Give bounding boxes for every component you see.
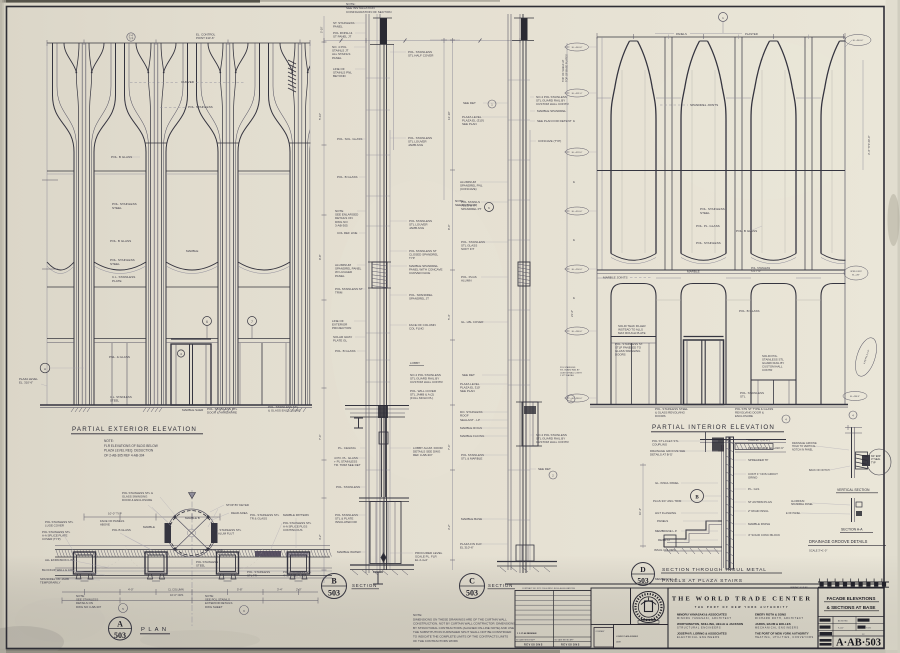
svg-text:GRAPHIC SCALES: GRAPHIC SCALES (790, 586, 808, 589)
svg-text:SEE DET: SEE DET (462, 373, 475, 377)
svg-text:MARBLE: MARBLE (687, 270, 700, 274)
svg-text:7'-6": 7'-6" (318, 434, 322, 440)
svg-text:SPANDREL PANEL: SPANDREL PANEL (791, 503, 814, 506)
svg-text:EL.+280'-0": EL.+280'-0" (572, 398, 583, 400)
svg-text:CUSTOM HALL CONTR: CUSTOM HALL CONTR (410, 380, 444, 384)
svg-text:& GLASS ENCLOSURE: & GLASS ENCLOSURE (268, 409, 300, 413)
svg-text:SPANDREL JT: SPANDREL JT (409, 297, 429, 301)
svg-text:TYP: TYP (871, 461, 876, 464)
svg-text:EL.+323'-0": EL.+323'-0" (572, 152, 583, 154)
svg-text:TYP: TYP (129, 39, 134, 41)
svg-text:PLGS 3/4" ANG TRIM: PLGS 3/4" ANG TRIM (653, 499, 682, 503)
svg-text:ABOVE: ABOVE (100, 523, 110, 527)
svg-text:MARBLE WATER: MARBLE WATER (337, 550, 362, 554)
svg-text:DETAILS AT B-'D': DETAILS AT B-'D' (650, 453, 673, 457)
svg-text:A: A (44, 367, 46, 371)
svg-text:5'-10": 5'-10" (318, 113, 322, 120)
svg-text:SECTION THROUGH INSUL METAL: SECTION THROUGH INSUL METAL (662, 567, 767, 573)
svg-text:& SECTIONS AT BASE: & SECTIONS AT BASE (826, 605, 875, 610)
svg-text:WORTHINGTON, SKILLING, HELLE &: WORTHINGTON, SKILLING, HELLE & JACKSON (677, 622, 743, 626)
svg-text:TEMPORARILY: TEMPORARILY (40, 581, 61, 585)
svg-text:SEALANT - LP: SEALANT - LP (460, 418, 480, 422)
svg-text:A·AB·503: A·AB·503 (836, 638, 881, 649)
svg-text:POL. B GLASS: POL. B GLASS (736, 229, 757, 233)
svg-text:AS NOTED: AS NOTED (838, 620, 848, 623)
svg-text:MARBLE: MARBLE (186, 249, 198, 253)
svg-text:PARTIAL INTERIOR ELEVATION: PARTIAL INTERIOR ELEVATION (652, 424, 775, 431)
svg-text:POL. STAINLESS: POL. STAINLESS (188, 105, 213, 109)
svg-text:DEAD AREA: DEAD AREA (231, 511, 248, 515)
svg-text:EL.+310'-6": EL.+310'-6" (572, 211, 583, 213)
svg-text:TR. TRIM SEE DET: TR. TRIM SEE DET (334, 463, 361, 467)
svg-text:SECTION A-A: SECTION A-A (841, 528, 863, 532)
svg-text:BEYOND: BEYOND (333, 74, 347, 78)
svg-text:PANEL: PANEL (335, 274, 345, 278)
svg-text:7: 7 (251, 320, 253, 324)
svg-text:503: 503 (466, 589, 478, 598)
svg-text:PLATE: PLATE (112, 279, 122, 283)
svg-text:R E V I S I O N S: R E V I S I O N S (524, 644, 543, 647)
svg-text:POL STAINLESS: POL STAINLESS (560, 366, 576, 369)
svg-text:SEE DET: SEE DET (463, 101, 476, 105)
svg-text:NOTCH IN PANEL: NOTCH IN PANEL (792, 448, 813, 451)
svg-text:9'-8": 9'-8" (318, 254, 322, 260)
svg-text:INSUL COLORS: INSUL COLORS (654, 548, 675, 552)
svg-text:ST ANTRIM PLGS: ST ANTRIM PLGS (748, 500, 772, 504)
svg-text:MINORU YAMASAKI & ASSOCIATES: MINORU YAMASAKI & ASSOCIATES (677, 613, 727, 617)
svg-text:4'-0": 4'-0" (128, 588, 134, 592)
svg-text:GL. LBL COVER: GL. LBL COVER (461, 320, 484, 324)
svg-text:T.S.H.: T.S.H. (866, 628, 872, 630)
svg-text:THE WORLD TRADE CENTER: THE WORLD TRADE CENTER (672, 596, 812, 603)
svg-text:STOP BY KEYED: STOP BY KEYED (226, 503, 249, 507)
svg-text:3'-2": 3'-2" (447, 524, 451, 530)
svg-text:8'-0": 8'-0" (447, 224, 451, 230)
svg-text:1 1/2" DIA RAIL: 1 1/2" DIA RAIL (560, 374, 575, 377)
svg-text:4'-2": 4'-2" (318, 534, 322, 540)
svg-text:MECHANICAL ENGINEERS: MECHANICAL ENGINEERS (755, 627, 799, 630)
svg-text:POL. STAINLESS: POL. STAINLESS (336, 485, 360, 489)
svg-text:COUPLING: COUPLING (652, 443, 668, 447)
svg-text:CURVED: CURVED (181, 80, 195, 84)
svg-text:NO DATE REV BY APP: NO DATE REV BY APP (516, 639, 536, 642)
svg-text:POL. B GLASS: POL. B GLASS (203, 548, 223, 552)
svg-text:POINT 310'-6": POINT 310'-6" (196, 36, 215, 40)
svg-text:REF 3-AB-307: REF 3-AB-307 (413, 453, 433, 457)
svg-text:HGT FLASHING: HGT FLASHING (655, 511, 677, 515)
svg-text:MAX ROUGH PLATE: MAX ROUGH PLATE (618, 331, 646, 335)
svg-text:PROJECTION: PROJECTION (332, 326, 351, 330)
svg-text:(CONCAVE): (CONCAVE) (460, 187, 477, 191)
svg-text:DOORS: DOORS (655, 414, 666, 418)
svg-text:MARBLE JOINTS: MARBLE JOINTS (603, 276, 628, 280)
svg-text:DOOR & HARDWARE: DOOR & HARDWARE (207, 411, 237, 415)
svg-text:4" SOLID CONC BLOCK: 4" SOLID CONC BLOCK (748, 533, 780, 537)
svg-text:MARBLE SAER: MARBLE SAER (182, 408, 204, 412)
svg-text:MARBLE PATTERN: MARBLE PATTERN (283, 513, 309, 517)
svg-text:STL & MARBLE: STL & MARBLE (461, 457, 482, 461)
svg-text:LOBBY: LOBBY (410, 361, 420, 365)
svg-text:ELECTRICAL ENGINEERS: ELECTRICAL ENGINEERS (677, 636, 720, 639)
svg-text:PANELS: PANELS (657, 519, 668, 523)
svg-text:STL: STL (740, 395, 746, 399)
svg-text:PANELS AT PLAZA STAIRS: PANELS AT PLAZA STAIRS (662, 578, 743, 584)
svg-text:TR & GLASS: TR & GLASS (250, 517, 267, 521)
svg-text:TRIM: TRIM (335, 291, 343, 295)
svg-text:EL 2-4+0': EL 2-4+0' (415, 558, 428, 562)
svg-text:CUSTOM HALL CONTR: CUSTOM HALL CONTR (560, 371, 582, 374)
svg-text:4" & ALUM FLUT: 4" & ALUM FLUT (212, 532, 234, 536)
svg-text:SPANDREL JOINTS: SPANDREL JOINTS (690, 103, 718, 107)
svg-text:10'-0" CRS: 10'-0" CRS (170, 593, 183, 597)
svg-text:PLASTER: PLASTER (745, 32, 758, 36)
svg-text:9-1-67: 9-1-67 (838, 628, 843, 630)
svg-text:10'-0" TYP: 10'-0" TYP (108, 512, 122, 516)
svg-text:RICHARD ROTH, ARCHITECT: RICHARD ROTH, ARCHITECT (755, 617, 804, 620)
svg-text:JAMB ANG: JAMB ANG (409, 226, 425, 230)
svg-text:P.L. GLS: P.L. GLS (748, 487, 759, 491)
svg-text:NOTE:: NOTE: (104, 439, 114, 443)
svg-text:STRUCTURAL ENGINEERS: STRUCTURAL ENGINEERS (677, 627, 721, 630)
svg-text:POL. STAINLESS: POL. STAINLESS (696, 241, 721, 245)
svg-text:DOOR & ENCLOSURE: DOOR & ENCLOSURE (122, 498, 152, 502)
svg-text:OF 2-AB-305 REF 4-AB-304: OF 2-AB-305 REF 4-AB-304 (104, 453, 145, 457)
svg-text:5'-8": 5'-8" (237, 588, 243, 592)
svg-text:P.L. CEILING: P.L. CEILING (338, 446, 356, 450)
svg-text:(FULL MOLD PL): (FULL MOLD PL) (410, 396, 433, 400)
svg-text:PANEL: PANEL (332, 56, 342, 60)
svg-text:STEEL: STEEL (110, 398, 120, 402)
svg-text:SCALE 3"=1'-0": SCALE 3"=1'-0" (809, 549, 827, 553)
svg-text:EL.+294'-0": EL.+294'-0" (572, 269, 583, 271)
svg-text:EL.+340'-6": EL.+340'-6" (853, 40, 864, 42)
svg-text:POL. B GLASS: POL. B GLASS (739, 309, 760, 313)
svg-text:STL HALF COVER: STL HALF COVER (408, 54, 434, 58)
svg-text:A: A (117, 620, 123, 629)
svg-text:2" RIGID INSUL: 2" RIGID INSUL (748, 509, 769, 513)
svg-text:JAROS, BAUM & BOLLES: JAROS, BAUM & BOLLES (755, 622, 791, 626)
svg-text:JAMB ANG: JAMB ANG (408, 143, 424, 147)
svg-text:REINF LT: REINF LT (658, 538, 671, 542)
svg-text:CUSTOM HALL CONTR: CUSTOM HALL CONTR (536, 102, 570, 106)
svg-text:EL.+286'-6": EL.+286'-6" (572, 331, 583, 333)
svg-text:SEE PLAN: SEE PLAN (460, 389, 475, 393)
svg-text:SOFT FIT: SOFT FIT (461, 247, 474, 251)
svg-text:DOORS: DOORS (615, 353, 626, 357)
svg-text:DWG NO 3-AB-307: DWG NO 3-AB-307 (76, 605, 102, 609)
svg-text:SEE PLAN FOR DETENT: SEE PLAN FOR DETENT (537, 119, 572, 123)
svg-text:SEE PLAN: SEE PLAN (462, 122, 477, 126)
svg-text:SPANDREL PT: SPANDREL PT (461, 207, 482, 211)
svg-text:POL B GLASS: POL B GLASS (112, 528, 131, 532)
svg-text:MARBLE ROGS: MARBLE ROGS (460, 426, 482, 430)
svg-text:TYP: TYP (409, 256, 415, 260)
svg-text:STEEL: STEEL (196, 564, 206, 568)
svg-text:C: C (469, 577, 475, 586)
svg-text:ROOF: ROOF (460, 414, 469, 418)
svg-text:STEEL: STEEL (112, 206, 122, 210)
svg-text:MARBLE: MARBLE (143, 525, 155, 529)
svg-text:EL.+287': EL.+287' (852, 275, 860, 277)
svg-text:3'-4": 3'-4" (129, 35, 134, 38)
svg-text:D: D (640, 565, 646, 574)
svg-text:MARBLE FINISH: MARBLE FINISH (748, 522, 770, 526)
svg-text:PLAZA LEVEL REQ. DEDUCTION: PLAZA LEVEL REQ. DEDUCTION (104, 449, 154, 453)
svg-text:MARBLE BASE: MARBLE BASE (461, 517, 482, 521)
svg-text:EL. 310'-6": EL. 310'-6" (19, 380, 33, 384)
svg-text:6: 6 (206, 320, 208, 324)
svg-text:CONTR: CONTR (762, 368, 772, 372)
svg-text:TOP OF BASE PLATES: TOP OF BASE PLATES (565, 54, 569, 82)
svg-text:INSULATED DR: INSULATED DR (335, 520, 358, 524)
svg-text:CONFIGURATION OF SECTION: CONFIGURATION OF SECTION (346, 10, 392, 14)
svg-text:GRIND: GRIND (748, 476, 757, 480)
svg-text:CARPET (N.I.C.): CARPET (N.I.C.) (748, 438, 770, 442)
svg-text:CONTRACT NO. WTC 214.00 REV 1: CONTRACT NO. WTC 214.00 REV 1 BLDG A-B E… (522, 587, 576, 590)
svg-text:503: 503 (114, 631, 126, 640)
svg-text:5'-10": 5'-10" (320, 26, 324, 33)
svg-text:DWG SHEET: DWG SHEET (205, 605, 223, 609)
svg-text:STL TYP: STL TYP (751, 270, 761, 273)
svg-text:HEATING, UTILITIES, CONVEYORS: HEATING, UTILITIES, CONVEYORS (755, 636, 814, 639)
svg-text:3'-4" TYP 20'-0": 3'-4" TYP 20'-0" (867, 135, 871, 155)
svg-text:4" SPLICE PLGS: 4" SPLICE PLGS (283, 574, 305, 578)
svg-text:PANEL: PANEL (333, 25, 343, 29)
svg-text:P L A N: P L A N (141, 627, 167, 633)
svg-text:SPREADER TP: SPREADER TP (748, 458, 768, 462)
svg-text:THE PORT OF NEW YORK AUTHORITY: THE PORT OF NEW YORK AUTHORITY (695, 606, 789, 609)
svg-text:POL. B GLASS: POL. B GLASS (337, 175, 358, 179)
svg-text:PARTIAL EXTERIOR ELEVATION: PARTIAL EXTERIOR ELEVATION (72, 426, 197, 433)
svg-text:CONTINUOUS: CONTINUOUS (283, 528, 303, 532)
svg-text:CUSTOM HALL CONTR: CUSTOM HALL CONTR (536, 440, 570, 444)
svg-text:PNL. & GLASS: PNL. & GLASS (109, 355, 130, 359)
svg-text:POL. B GLASS: POL. B GLASS (335, 349, 356, 353)
svg-text:BACK OF NOTCH: BACK OF NOTCH (809, 469, 830, 472)
svg-text:13'-10": 13'-10" (447, 111, 451, 120)
svg-text:R E V I S I O N S: R E V I S I O N S (561, 644, 580, 647)
svg-text:EL.+340'-6": EL.+340'-6" (572, 47, 583, 49)
svg-text:5'-4": 5'-4" (447, 314, 451, 320)
svg-text:VERTICAL SECTION: VERTICAL SECTION (837, 488, 870, 492)
svg-text:MINORU YAMASAKI, ARCHITECT: MINORU YAMASAKI, ARCHITECT (677, 617, 732, 620)
svg-text:B: B (331, 577, 337, 586)
svg-text:MARBLE B: MARBLE B (185, 516, 200, 520)
svg-text:SECTION: SECTION (352, 583, 377, 588)
svg-text:PANELS: PANELS (676, 32, 687, 36)
svg-text:COL FLNG: COL FLNG (409, 327, 425, 331)
svg-text:3'-4": 3'-4" (277, 588, 283, 592)
svg-text:EL.+286'-6": EL.+286'-6" (850, 396, 860, 398)
svg-text:CONCAVE (TYP): CONCAVE (TYP) (538, 139, 561, 143)
svg-text:COL REF LINE: COL REF LINE (337, 231, 357, 235)
svg-text:MEMBRANE L.P.: MEMBRANE L.P. (655, 529, 677, 533)
svg-text:CURVED FACE: CURVED FACE (409, 271, 430, 275)
svg-text:FLR ELEVATIONS OF BLDG BELOW: FLR ELEVATIONS OF BLDG BELOW (104, 444, 158, 448)
svg-text:POL. B GLASS: POL. B GLASS (110, 239, 131, 243)
svg-text:COVER (TYP): COVER (TYP) (42, 537, 61, 541)
svg-text:COMPANY: COMPANY (596, 630, 606, 633)
svg-text:POL. PL. GLASS: POL. PL. GLASS (696, 224, 720, 228)
svg-text:10'-4": 10'-4" (638, 508, 642, 515)
svg-text:7'-6": 7'-6" (447, 444, 451, 450)
svg-text:MARBLE SPANDREL: MARBLE SPANDREL (537, 109, 566, 113)
svg-text:BLOCKUP WALL & COL: BLOCKUP WALL & COL (42, 568, 74, 572)
svg-text:LUGE COVER: LUGE COVER (45, 524, 64, 528)
svg-text:OF THE CONTRACTORS WORK: OF THE CONTRACTORS WORK (413, 639, 458, 643)
svg-text:FIN CONC FLR EL +310'-6": FIN CONC FLR EL +310'-6" (748, 446, 784, 450)
svg-text:EL 310'-6": EL 310'-6" (460, 546, 474, 550)
svg-text:1 1-17-68 REISSUE: 1 1-17-68 REISSUE (517, 633, 537, 635)
svg-text:SPND JOINT: SPND JOINT (850, 271, 862, 273)
svg-text:DATE: DATE (616, 641, 622, 644)
svg-text:EL.+331'-0": EL.+331'-0" (572, 93, 583, 95)
svg-text:NO DATE REV BY APP: NO DATE REV BY APP (555, 639, 575, 642)
svg-text:LOWER PLAZA NUMBER: LOWER PLAZA NUMBER (616, 635, 639, 638)
svg-text:STEEL: STEEL (110, 262, 120, 266)
svg-text:E OF PANEL: E OF PANEL (786, 512, 801, 515)
svg-text:JOSEPH R. LORING & ASSOCIATES: JOSEPH R. LORING & ASSOCIATES (677, 632, 727, 636)
svg-text:STEEL: STEEL (700, 211, 710, 215)
svg-text:DRAINAGE GROOVE DETAILS: DRAINAGE GROOVE DETAILS (809, 539, 868, 544)
svg-text:STL GUARD RAIL BY: STL GUARD RAIL BY (560, 369, 580, 372)
svg-text:THE PORT OF NEW YORK AUTHORITY: THE PORT OF NEW YORK AUTHORITY (755, 632, 809, 636)
svg-text:503: 503 (328, 589, 340, 598)
svg-text:ALUMN: ALUMN (461, 279, 472, 283)
svg-text:SEE DET: SEE DET (538, 467, 551, 471)
svg-text:21'-6": 21'-6" (570, 310, 574, 317)
svg-text:ENCLOSURE: ENCLOSURE (735, 414, 753, 418)
svg-text:3-AB-305: 3-AB-305 (335, 223, 348, 227)
svg-text:2'-0": 2'-0" (296, 588, 302, 592)
svg-text:STL TR: STL TR (247, 574, 257, 578)
svg-text:GL. INSUL PANEL: GL. INSUL PANEL (655, 481, 679, 485)
svg-text:POL. SOL. GLASS: POL. SOL. GLASS (337, 137, 362, 141)
svg-text:EMERY ROTH & SONS: EMERY ROTH & SONS (755, 613, 786, 617)
svg-text:TOP OF SHELF AT: TOP OF SHELF AT (561, 59, 565, 82)
svg-text:FACADE ELEVATIONS: FACADE ELEVATIONS (827, 596, 876, 601)
svg-text:CL COLUMN: CL COLUMN (168, 588, 184, 592)
svg-text:PLATE GL: PLATE GL (333, 339, 347, 343)
svg-text:ST PANEL JT: ST PANEL JT (333, 35, 351, 39)
